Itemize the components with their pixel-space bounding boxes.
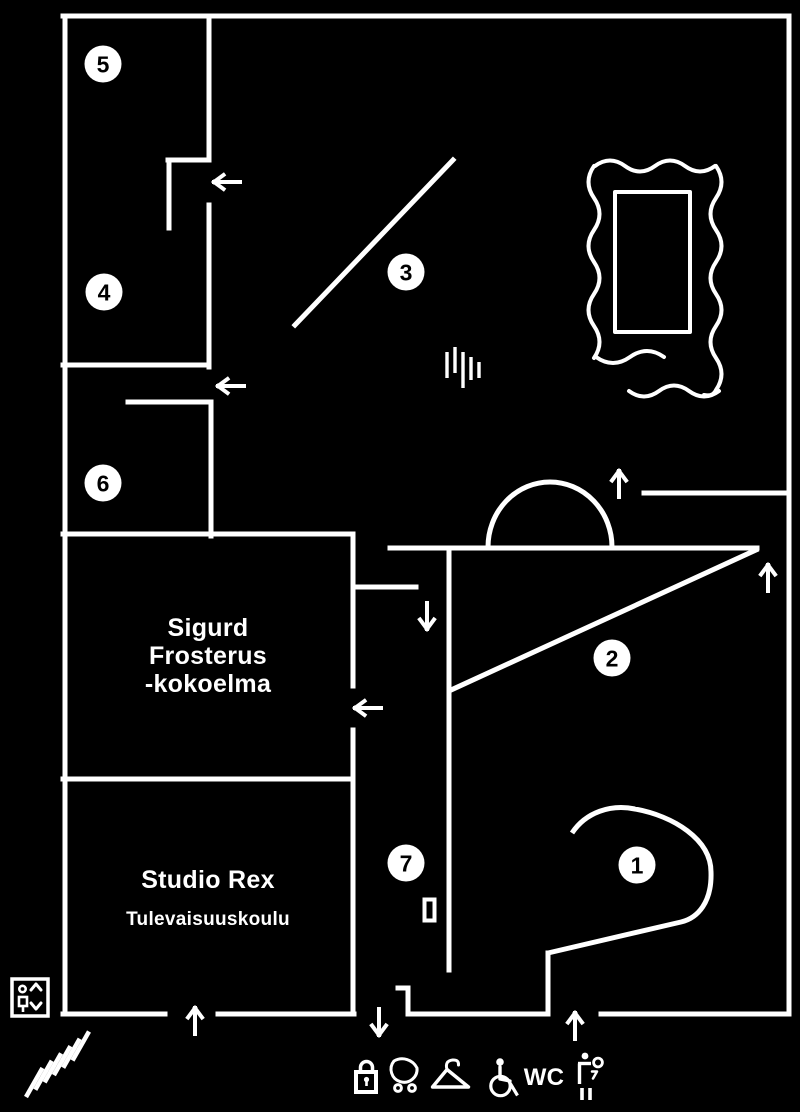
floorplan-canvas: 1234567SigurdFrosterus-kokoelmaStudio Re… bbox=[0, 0, 800, 1112]
wc-label: WC bbox=[524, 1064, 565, 1091]
baby-changing-icon-shape-0 bbox=[582, 1053, 589, 1060]
floorplan: 1234567SigurdFrosterus-kokoelmaStudio Re… bbox=[0, 0, 800, 1112]
label-sigurd-line1: Sigurd bbox=[168, 614, 249, 642]
label-sigurd-line3: -kokoelma bbox=[145, 670, 272, 698]
label-tulevaisuuskoulu: Tulevaisuuskoulu bbox=[126, 909, 290, 930]
label-sigurd-line2: Frosterus bbox=[149, 642, 267, 670]
room-marker-number-4: 4 bbox=[98, 279, 111, 305]
room-marker-number-6: 6 bbox=[97, 470, 110, 496]
label-studio-rex: Studio Rex bbox=[141, 866, 275, 894]
room-marker-number-3: 3 bbox=[400, 259, 413, 285]
wheelchair-icon-shape-0 bbox=[496, 1058, 504, 1066]
room-marker-number-7: 7 bbox=[400, 850, 413, 876]
room-marker-number-1: 1 bbox=[631, 852, 644, 878]
room-marker-number-5: 5 bbox=[97, 51, 110, 77]
room-marker-number-2: 2 bbox=[606, 645, 619, 671]
background bbox=[0, 0, 800, 1112]
